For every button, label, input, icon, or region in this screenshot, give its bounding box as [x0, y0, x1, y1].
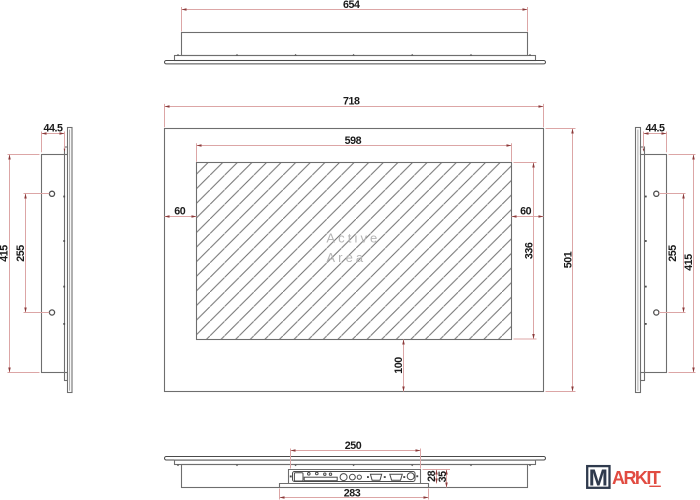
- svg-text:250: 250: [345, 440, 362, 452]
- svg-text:718: 718: [343, 96, 360, 108]
- svg-text:255: 255: [15, 245, 27, 262]
- svg-text:501: 501: [562, 251, 574, 268]
- svg-text:598: 598: [345, 135, 362, 147]
- svg-text:654: 654: [343, 0, 360, 11]
- svg-text:44.5: 44.5: [43, 122, 63, 134]
- svg-text:100: 100: [393, 357, 405, 374]
- svg-text:415: 415: [0, 245, 10, 262]
- svg-text:60: 60: [174, 206, 185, 218]
- svg-text:Area: Area: [326, 250, 366, 265]
- svg-text:283: 283: [344, 488, 361, 500]
- svg-text:336: 336: [523, 242, 535, 259]
- svg-text:44.5: 44.5: [645, 122, 665, 134]
- svg-text:255: 255: [667, 245, 679, 262]
- svg-text:60: 60: [520, 206, 531, 218]
- svg-text:ARKIT: ARKIT: [612, 468, 661, 488]
- svg-text:Active: Active: [326, 231, 380, 246]
- svg-text:35: 35: [437, 471, 449, 482]
- svg-text:415: 415: [683, 254, 695, 271]
- svg-text:M: M: [589, 464, 608, 490]
